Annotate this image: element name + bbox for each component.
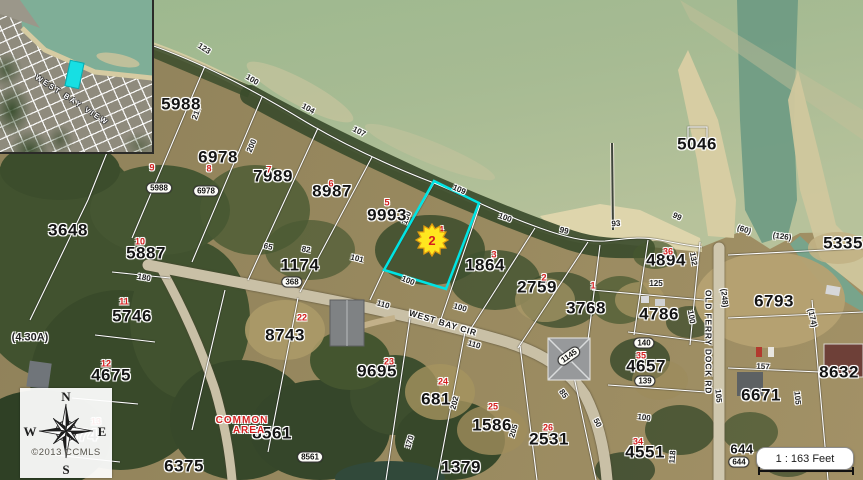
search-result-marker[interactable]: 2	[415, 223, 449, 257]
copyright-text: ©2013 CCMLS	[31, 447, 101, 458]
compass-north-label: N	[61, 389, 70, 405]
map-stage[interactable]: 1231001041071091009993217200100100658210…	[0, 0, 863, 480]
compass-east-label: E	[98, 424, 107, 440]
scale-ratio-label: 1 : 163 Feet	[776, 453, 835, 465]
scale-bar	[757, 466, 855, 476]
marker-number: 2	[415, 224, 449, 258]
compass-west-label: W	[24, 424, 37, 440]
channel-water	[737, 0, 798, 243]
inset-overview-map[interactable]: WEST BAY VIEW	[0, 0, 154, 154]
compass-south-label: S	[62, 462, 69, 478]
compass-rose: N W E S ©2013 CCMLS	[20, 388, 112, 478]
